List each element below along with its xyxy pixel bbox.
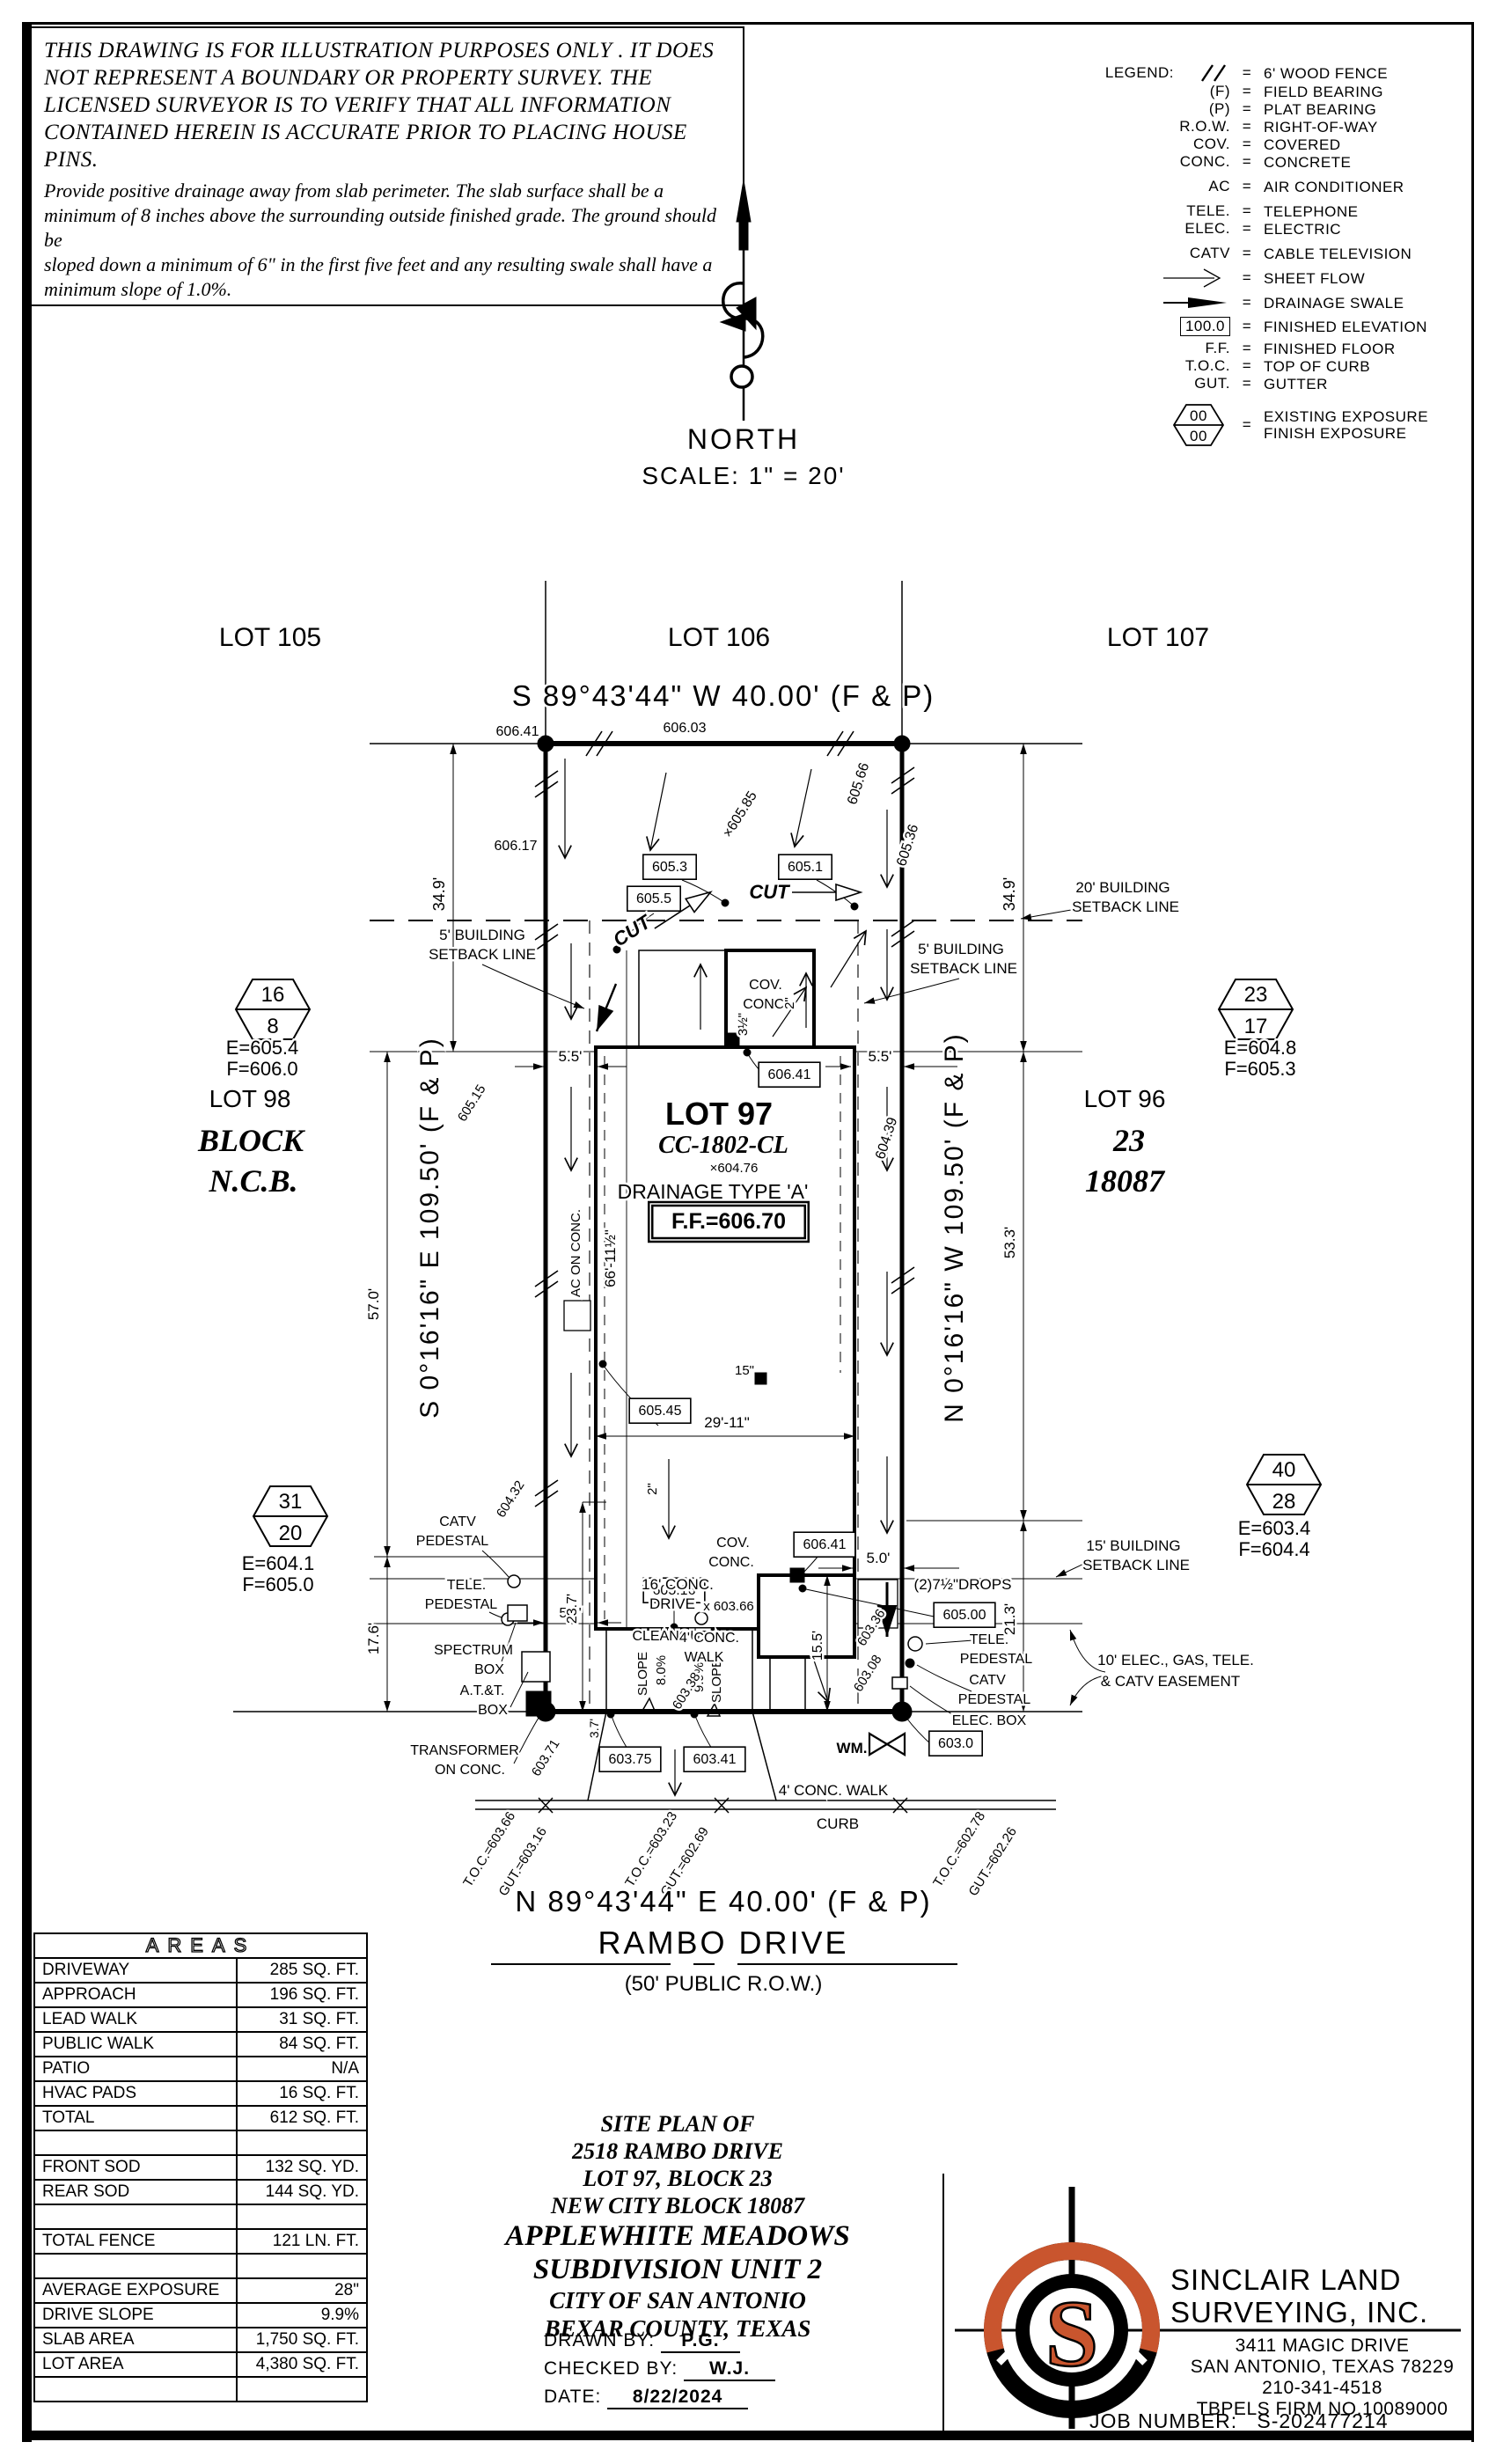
areas-table: AREAS DRIVEWAY285 SQ. FT.APPROACH196 SQ.… xyxy=(33,1932,368,2402)
areas-label xyxy=(34,2204,237,2229)
areas-table-row: PATION/A xyxy=(34,2057,367,2081)
areas-label: DRIVEWAY xyxy=(34,1958,237,1983)
areas-table-row: DRIVEWAY285 SQ. FT. xyxy=(34,1958,367,1983)
finished-elevation-icon: 100.0 xyxy=(1180,317,1230,336)
areas-value: 121 LN. FT. xyxy=(237,2229,367,2254)
legend-symbol: GUT. xyxy=(1194,375,1230,392)
areas-value: 9.9% xyxy=(237,2303,367,2328)
areas-label: REAR SOD xyxy=(34,2180,237,2204)
legend-label: GUTTER xyxy=(1264,376,1328,392)
legend-row: TELE.=TELEPHONE xyxy=(1098,202,1468,220)
exposure-hexagon-icon: 0000 xyxy=(1167,400,1230,451)
wood-fence-icon xyxy=(1195,63,1230,83)
legend-symbol: TELE. xyxy=(1186,202,1230,220)
areas-label: LEAD WALK xyxy=(34,2007,237,2032)
legend-label: TOP OF CURB xyxy=(1264,358,1370,375)
firm-name-line1: SINCLAIR LAND xyxy=(1170,2263,1474,2296)
areas-value: 16 SQ. FT. xyxy=(237,2081,367,2106)
areas-label: SLAB AREA xyxy=(34,2328,237,2352)
legend-label: FINISHED FLOOR xyxy=(1264,341,1396,357)
legend-row: (F)=FIELD BEARING xyxy=(1098,83,1468,100)
areas-value: 28" xyxy=(237,2278,367,2303)
areas-table-title: AREAS xyxy=(34,1933,367,1958)
areas-table-row xyxy=(34,2204,367,2229)
job-number: JOB NUMBER: S-202477214 xyxy=(1089,2409,1388,2433)
firm-name-line2: SURVEYING, INC. xyxy=(1170,2296,1474,2328)
areas-table-row: SLAB AREA1,750 SQ. FT. xyxy=(34,2328,367,2352)
areas-label: HVAC PADS xyxy=(34,2081,237,2106)
legend-row: ELEC.=ELECTRIC xyxy=(1098,220,1468,238)
legend-symbol: CATV xyxy=(1190,245,1230,262)
areas-value: N/A xyxy=(237,2057,367,2081)
firm-info: SINCLAIR LAND SURVEYING, INC. 3411 MAGIC… xyxy=(1170,2263,1474,2420)
sheet-flow-icon xyxy=(1162,268,1230,289)
areas-table-row xyxy=(34,2377,367,2402)
legend-symbol: ELEC. xyxy=(1184,220,1230,238)
areas-value xyxy=(237,2254,367,2278)
areas-label xyxy=(34,2254,237,2278)
note-line: minimum slope of 1.0%. xyxy=(44,277,730,302)
areas-table-row xyxy=(34,2130,367,2155)
areas-label: DRIVE SLOPE xyxy=(34,2303,237,2328)
legend-symbol: (P) xyxy=(1209,100,1230,118)
legend-symbol: COV. xyxy=(1193,136,1230,153)
legend-row: COV.=COVERED xyxy=(1098,136,1468,153)
note-line: NOT REPRESENT A BOUNDARY OR PROPERTY SUR… xyxy=(44,64,730,92)
areas-value xyxy=(237,2204,367,2229)
areas-table-row: PUBLIC WALK84 SQ. FT. xyxy=(34,2032,367,2057)
areas-value: 144 SQ. YD. xyxy=(237,2180,367,2204)
areas-label: FRONT SOD xyxy=(34,2155,237,2180)
areas-table-row: REAR SOD144 SQ. YD. xyxy=(34,2180,367,2204)
title-block-line: SUBDIVISION UNIT 2 xyxy=(414,2253,942,2286)
areas-table-row: DRIVE SLOPE9.9% xyxy=(34,2303,367,2328)
job-number-label: JOB NUMBER: xyxy=(1089,2409,1237,2432)
areas-label: TOTAL xyxy=(34,2106,237,2130)
legend-label: AIR CONDITIONER xyxy=(1264,179,1404,195)
areas-label: PATIO xyxy=(34,2057,237,2081)
title-block-line: APPLEWHITE MEADOWS xyxy=(414,2219,942,2253)
legend-label: CABLE TELEVISION xyxy=(1264,246,1412,262)
firm-address1: 3411 MAGIC DRIVE xyxy=(1170,2336,1474,2357)
firm-address2: SAN ANTONIO, TEXAS 78229 xyxy=(1170,2357,1474,2378)
checked-by-label: CHECKED BY: xyxy=(544,2358,678,2379)
legend-label: TELEPHONE xyxy=(1264,203,1358,220)
legend: LEGEND:=6' WOOD FENCE(F)=FIELD BEARING(P… xyxy=(1098,63,1468,451)
areas-value: 4,380 SQ. FT. xyxy=(237,2352,367,2377)
title-block-line: LOT 97, BLOCK 23 xyxy=(414,2165,942,2192)
date-label: DATE: xyxy=(544,2387,601,2407)
areas-label: TOTAL FENCE xyxy=(34,2229,237,2254)
areas-value: 285 SQ. FT. xyxy=(237,1958,367,1983)
areas-table-row: TOTAL FENCE121 LN. FT. xyxy=(34,2229,367,2254)
legend-row: =DRAINAGE SWALE xyxy=(1098,294,1468,312)
checked-by-value: W.J. xyxy=(684,2358,775,2381)
drainage-swale-icon xyxy=(1162,295,1230,311)
legend-label: EXISTING EXPOSURE FINISH EXPOSURE xyxy=(1264,408,1428,442)
legend-row: (P)=PLAT BEARING xyxy=(1098,100,1468,118)
areas-value: 31 SQ. FT. xyxy=(237,2007,367,2032)
areas-label xyxy=(34,2130,237,2155)
note-line: CONTAINED HEREIN IS ACCURATE PRIOR TO PL… xyxy=(44,119,730,173)
legend-label: PLAT BEARING xyxy=(1264,101,1376,118)
legend-row: GUT.=GUTTER xyxy=(1098,375,1468,392)
svg-text:00: 00 xyxy=(1190,407,1207,424)
areas-value: 612 SQ. FT. xyxy=(237,2106,367,2130)
legend-label: CONCRETE xyxy=(1264,154,1351,171)
legend-label: DRAINAGE SWALE xyxy=(1264,295,1404,312)
areas-value xyxy=(237,2130,367,2155)
areas-table-row: APPROACH196 SQ. FT. xyxy=(34,1983,367,2007)
legend-symbol: R.O.W. xyxy=(1179,118,1230,136)
title-block-line: SITE PLAN OF xyxy=(414,2110,942,2138)
areas-label: APPROACH xyxy=(34,1983,237,2007)
legend-row: CONC.=CONCRETE xyxy=(1098,153,1468,171)
areas-table-row: LOT AREA4,380 SQ. FT. xyxy=(34,2352,367,2377)
legend-label: RIGHT-OF-WAY xyxy=(1264,119,1378,136)
areas-table-row: HVAC PADS16 SQ. FT. xyxy=(34,2081,367,2106)
note-line: Provide positive drainage away from slab… xyxy=(44,179,730,203)
legend-symbol: F.F. xyxy=(1206,340,1230,357)
areas-label: PUBLIC WALK xyxy=(34,2032,237,2057)
legend-label: FINISHED ELEVATION xyxy=(1264,319,1427,335)
disclaimer-note: THIS DRAWING IS FOR ILLUSTRATION PURPOSE… xyxy=(44,37,730,173)
legend-row: T.O.C.=TOP OF CURB xyxy=(1098,357,1468,375)
drainage-note: Provide positive drainage away from slab… xyxy=(44,179,730,302)
areas-value xyxy=(237,2377,367,2402)
legend-label: SHEET FLOW xyxy=(1264,270,1365,287)
title-block-line: 2518 RAMBO DRIVE xyxy=(414,2138,942,2165)
areas-value: 84 SQ. FT. xyxy=(237,2032,367,2057)
legend-row: =SHEET FLOW xyxy=(1098,268,1468,289)
legend-label: 6' WOOD FENCE xyxy=(1264,65,1388,82)
site-plan-sheet: S LOT 105LOT 106LOT 107S 89°43'44" W 40.… xyxy=(0,0,1496,2464)
title-block-line: CITY OF SAN ANTONIO xyxy=(414,2286,942,2314)
drawn-by-label: DRAWN BY: xyxy=(544,2330,655,2350)
areas-value: 132 SQ. YD. xyxy=(237,2155,367,2180)
areas-table-row: TOTAL612 SQ. FT. xyxy=(34,2106,367,2130)
legend-row: 0000=EXISTING EXPOSURE FINISH EXPOSURE xyxy=(1098,400,1468,451)
areas-label: AVERAGE EXPOSURE xyxy=(34,2278,237,2303)
legend-title: LEGEND: xyxy=(1105,64,1174,82)
title-block-credits: DRAWN BY: P.G. CHECKED BY: W.J. DATE: 8/… xyxy=(544,2330,775,2415)
areas-label: LOT AREA xyxy=(34,2352,237,2377)
legend-symbol: T.O.C. xyxy=(1185,357,1230,375)
legend-label: ELECTRIC xyxy=(1264,221,1341,238)
legend-row: LEGEND:=6' WOOD FENCE xyxy=(1098,63,1468,83)
note-line: sloped down a minimum of 6" in the first… xyxy=(44,253,730,277)
areas-table-row xyxy=(34,2254,367,2278)
legend-symbol: AC xyxy=(1208,178,1230,195)
legend-row: R.O.W.=RIGHT-OF-WAY xyxy=(1098,118,1468,136)
notes-box: THIS DRAWING IS FOR ILLUSTRATION PURPOSE… xyxy=(32,26,744,306)
legend-symbol: CONC. xyxy=(1180,153,1230,171)
areas-table-row: LEAD WALK31 SQ. FT. xyxy=(34,2007,367,2032)
date-value: 8/22/2024 xyxy=(607,2387,748,2409)
job-number-value: S-202477214 xyxy=(1257,2409,1388,2432)
areas-table-row: AVERAGE EXPOSURE28" xyxy=(34,2278,367,2303)
legend-row: F.F.=FINISHED FLOOR xyxy=(1098,340,1468,357)
note-line: THIS DRAWING IS FOR ILLUSTRATION PURPOSE… xyxy=(44,37,730,64)
legend-symbol: (F) xyxy=(1210,83,1230,100)
note-line: minimum of 8 inches above the surroundin… xyxy=(44,203,730,253)
firm-phone: 210-341-4518 xyxy=(1170,2378,1474,2399)
note-line: LICENSED SURVEYOR IS TO VERIFY THAT ALL … xyxy=(44,92,730,119)
legend-row: CATV=CABLE TELEVISION xyxy=(1098,245,1468,262)
areas-label xyxy=(34,2377,237,2402)
svg-text:00: 00 xyxy=(1190,428,1207,444)
legend-label: FIELD BEARING xyxy=(1264,84,1383,100)
drawn-by-value: P.G. xyxy=(661,2330,740,2353)
legend-row: 100.0=FINISHED ELEVATION xyxy=(1098,317,1468,336)
legend-label: COVERED xyxy=(1264,136,1341,153)
sheet-border-left xyxy=(22,22,32,2442)
areas-value: 1,750 SQ. FT. xyxy=(237,2328,367,2352)
title-block: SITE PLAN OF2518 RAMBO DRIVELOT 97, BLOC… xyxy=(414,2110,942,2343)
legend-row: AC=AIR CONDITIONER xyxy=(1098,178,1468,195)
areas-table-row: FRONT SOD132 SQ. YD. xyxy=(34,2155,367,2180)
areas-value: 196 SQ. FT. xyxy=(237,1983,367,2007)
title-block-line: NEW CITY BLOCK 18087 xyxy=(414,2192,942,2219)
